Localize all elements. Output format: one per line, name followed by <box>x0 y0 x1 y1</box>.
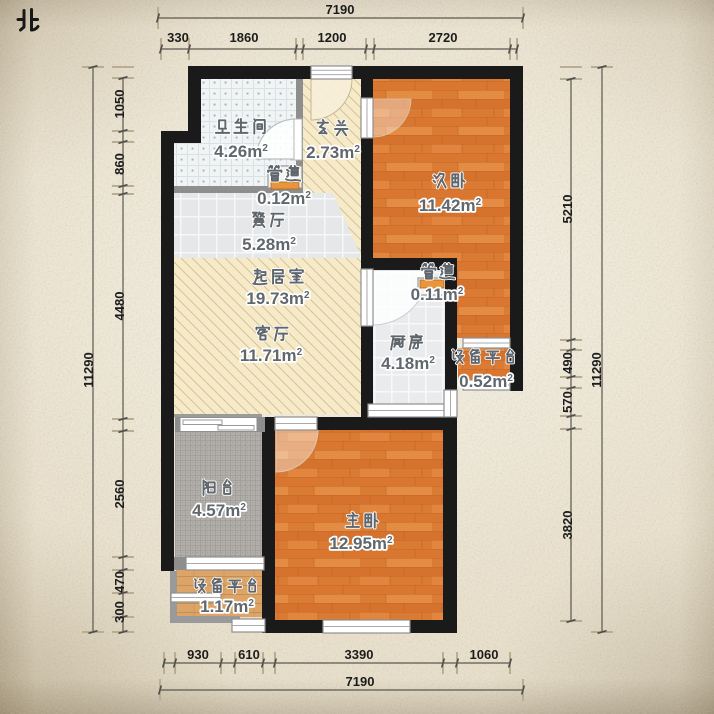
svg-text:11290: 11290 <box>81 352 96 387</box>
svg-text:4.18m2: 4.18m2 <box>381 354 435 373</box>
svg-text:300: 300 <box>112 601 127 623</box>
svg-text:0.52m2: 0.52m2 <box>459 372 513 391</box>
svg-text:470: 470 <box>112 571 127 593</box>
svg-text:610: 610 <box>238 647 260 662</box>
svg-text:4480: 4480 <box>112 292 127 321</box>
svg-text:2.73m2: 2.73m2 <box>306 143 360 162</box>
svg-text:5.28m2: 5.28m2 <box>242 235 296 254</box>
svg-text:2560: 2560 <box>112 480 127 509</box>
svg-text:0.12m2: 0.12m2 <box>257 189 311 208</box>
svg-text:1.17m2: 1.17m2 <box>200 597 254 616</box>
svg-text:1200: 1200 <box>318 30 347 45</box>
svg-text:330: 330 <box>167 30 189 45</box>
svg-text:0.11m2: 0.11m2 <box>411 285 464 304</box>
svg-text:4.26m2: 4.26m2 <box>214 142 268 161</box>
svg-text:930: 930 <box>187 647 209 662</box>
svg-text:860: 860 <box>112 153 127 175</box>
svg-text:19.73m2: 19.73m2 <box>246 289 310 308</box>
svg-text:570: 570 <box>560 391 575 413</box>
svg-text:3820: 3820 <box>560 511 575 540</box>
svg-text:5210: 5210 <box>560 195 575 224</box>
svg-text:11.71m2: 11.71m2 <box>240 346 303 365</box>
svg-text:11290: 11290 <box>589 352 604 387</box>
svg-text:490: 490 <box>560 352 575 374</box>
svg-text:1050: 1050 <box>112 90 127 119</box>
svg-text:11.42m2: 11.42m2 <box>419 196 482 215</box>
svg-text:3390: 3390 <box>345 647 374 662</box>
svg-text:12.95m2: 12.95m2 <box>329 534 393 553</box>
svg-text:7190: 7190 <box>346 674 375 689</box>
svg-text:1860: 1860 <box>230 30 259 45</box>
svg-text:1060: 1060 <box>470 647 499 662</box>
svg-text:4.57m2: 4.57m2 <box>192 501 246 520</box>
svg-text:7190: 7190 <box>326 2 355 17</box>
svg-text:2720: 2720 <box>429 30 458 45</box>
